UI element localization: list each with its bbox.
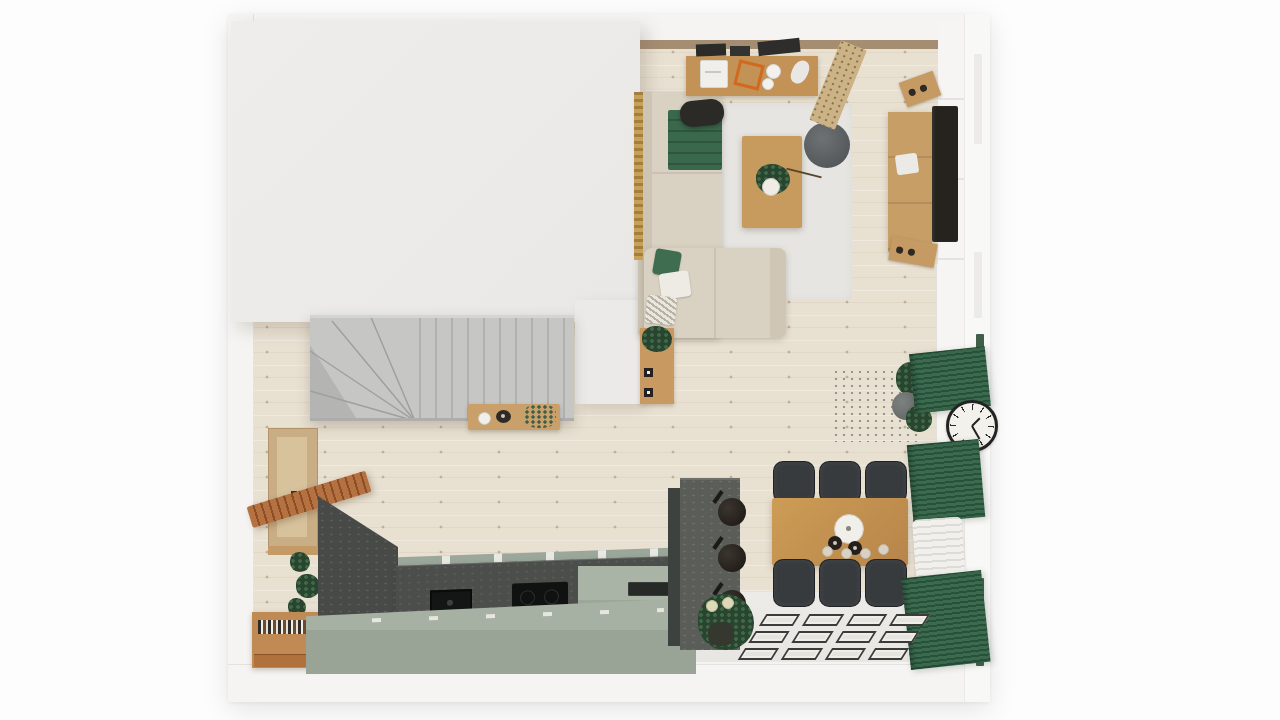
dining-chair bbox=[774, 462, 814, 502]
cabinet-knob bbox=[644, 388, 653, 397]
mat-tile bbox=[792, 631, 834, 643]
place-setting bbox=[860, 548, 871, 559]
entry-mat-tiles bbox=[738, 614, 931, 660]
mat-tile bbox=[845, 614, 887, 626]
plan-card bbox=[228, 14, 990, 702]
printer bbox=[700, 60, 728, 88]
mat-tile bbox=[738, 648, 780, 660]
mat-tile bbox=[759, 614, 801, 626]
console-device bbox=[895, 153, 920, 176]
mat-tile bbox=[802, 614, 844, 626]
stair-console-table bbox=[468, 404, 560, 430]
pan bbox=[718, 544, 746, 572]
pouf bbox=[804, 122, 850, 168]
monitor bbox=[730, 46, 750, 56]
floor-plan-render bbox=[0, 0, 1280, 720]
book-spines bbox=[258, 620, 314, 634]
dining-chair bbox=[866, 462, 906, 502]
flower bbox=[722, 597, 734, 609]
window-slot bbox=[974, 252, 982, 318]
flowers bbox=[524, 404, 556, 428]
cabinet-knob bbox=[644, 368, 653, 377]
flower bbox=[706, 600, 718, 612]
paper-roll bbox=[762, 78, 774, 90]
gold-curtain-edge bbox=[634, 92, 643, 260]
kitchen-plant-pot bbox=[708, 622, 734, 646]
window-slot bbox=[974, 54, 982, 144]
bowl bbox=[496, 410, 511, 423]
wall-plant bbox=[296, 574, 320, 598]
mat-tile bbox=[781, 648, 823, 660]
vase bbox=[762, 178, 780, 196]
curtain-panel bbox=[907, 439, 986, 523]
dining-chair bbox=[774, 560, 814, 606]
monitor bbox=[696, 43, 726, 56]
side-cabinet-plant bbox=[642, 326, 672, 352]
dining-chair bbox=[820, 462, 860, 502]
tv bbox=[932, 106, 958, 242]
mat-tile bbox=[835, 631, 877, 643]
tv-stand bbox=[888, 112, 932, 252]
place-setting bbox=[878, 544, 889, 555]
dining-chair bbox=[866, 560, 906, 606]
plate bbox=[478, 412, 491, 425]
upper-floor-cover-small bbox=[575, 300, 640, 404]
paper-roll bbox=[766, 64, 781, 79]
wall-plant bbox=[290, 552, 310, 572]
dining-chairs-top bbox=[774, 462, 906, 502]
niche-inner-panel bbox=[277, 437, 307, 537]
pan bbox=[718, 498, 746, 526]
dining-chair bbox=[820, 560, 860, 606]
mat-tile bbox=[824, 648, 866, 660]
place-setting bbox=[822, 546, 833, 557]
dining-chairs-bottom bbox=[774, 560, 906, 606]
upper-floor-cover bbox=[231, 21, 640, 322]
mat-tile bbox=[748, 631, 790, 643]
striped-pillow bbox=[645, 295, 678, 326]
place-setting bbox=[841, 548, 852, 559]
